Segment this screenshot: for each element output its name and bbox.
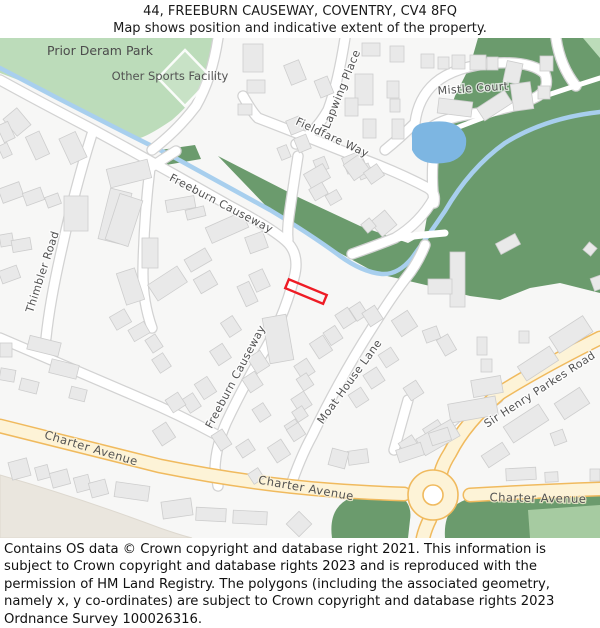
- page-subtitle: Map shows position and indicative extent…: [0, 21, 600, 36]
- page-title: 44, FREEBURN CAUSEWAY, COVENTRY, CV4 8FQ: [0, 0, 600, 19]
- attribution-footer: Contains OS data © Crown copyright and d…: [0, 538, 600, 628]
- label-park: Prior Deram Park: [47, 43, 154, 58]
- map-image: Prior Deram Park Other Sports Facility L…: [0, 38, 600, 538]
- pond: [412, 121, 466, 163]
- map-header: 44, FREEBURN CAUSEWAY, COVENTRY, CV4 8FQ…: [0, 0, 600, 38]
- label-charter-avenue-east: Charter Avenue: [490, 490, 587, 506]
- light-green-strip: [528, 505, 600, 538]
- map-container: Prior Deram Park Other Sports Facility L…: [0, 38, 600, 538]
- label-sports-facility: Other Sports Facility: [112, 69, 229, 83]
